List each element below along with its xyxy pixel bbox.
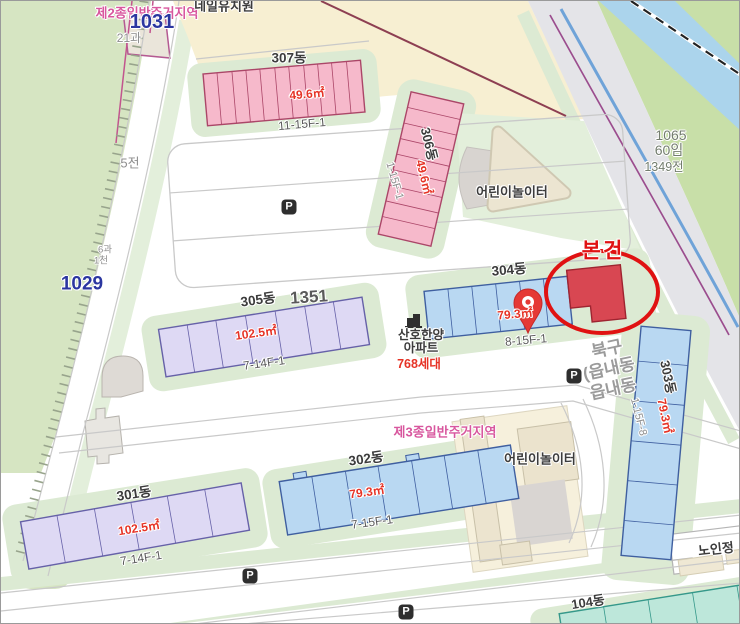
parcel-6-label: 6과: [98, 245, 112, 255]
subject-label: 본건: [582, 241, 625, 262]
parcel-5-label: 5전: [120, 157, 139, 170]
kindergarten-label: 네일유치원: [194, 0, 254, 13]
building-307-name: 307동: [272, 51, 307, 65]
parking-icon: P: [567, 369, 582, 384]
households-label: 768세대: [397, 358, 441, 371]
parcel-1029-label: 1029: [61, 275, 103, 294]
playground2-label: 어린이놀이터: [504, 453, 576, 466]
playground1-label: 어린이놀이터: [476, 186, 548, 199]
parcel-60-label: 60임: [655, 143, 683, 157]
parking-icon: P: [243, 569, 258, 584]
parking-icon: P: [282, 200, 297, 215]
parking-icon: P: [399, 605, 414, 620]
building-304-area: 79.3㎡: [497, 306, 533, 321]
building-304-floors: 8-15F-1: [505, 332, 548, 348]
building-304-name: 304동: [491, 262, 527, 278]
map-graphics: [1, 1, 740, 624]
parcel-1031-label: 1031: [130, 12, 175, 32]
parcel-1cheon-label: 1천: [94, 256, 108, 266]
parcel-21-label: 21과: [117, 32, 141, 44]
building-307-area: 49.6㎡: [289, 86, 325, 101]
parcel-1351-label: 1351: [290, 287, 329, 307]
parcel-1349-label: 1349전: [644, 161, 683, 174]
fan-building: [102, 356, 143, 397]
map-canvas: 제2종일반주거지역 네일유치원 1031 21과 307동 49.6㎡ 11-1…: [0, 0, 740, 624]
playground2-shed: [500, 541, 532, 565]
zone3-label: 제3종일반주거지역: [394, 426, 497, 439]
senior-center-label: 노인정: [697, 541, 734, 558]
parcel-1065-label: 1065: [655, 128, 686, 142]
apartment-name-line2: 아파트: [404, 342, 439, 355]
apartment-name-line1: 산호한양: [398, 329, 444, 342]
